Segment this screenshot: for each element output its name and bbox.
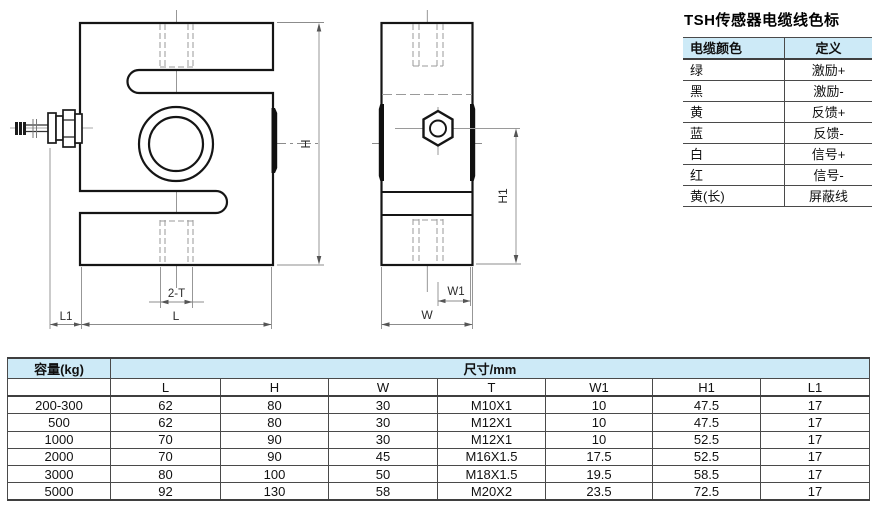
table-row: 蓝 反馈- xyxy=(683,123,872,144)
datasheet-page: H 2-T L1 L xyxy=(0,0,881,506)
cell: M16X1.5 xyxy=(438,448,546,465)
cell: M12X1 xyxy=(438,414,546,431)
table-row: 黄 反馈+ xyxy=(683,102,872,123)
cell: 80 xyxy=(221,414,329,431)
cell-definition: 反馈- xyxy=(785,123,873,144)
dim-2t-label: 2-T xyxy=(168,288,185,300)
dim-h1-arrow-top xyxy=(514,129,519,138)
dim-h-label: H xyxy=(299,139,313,148)
definition-header: 定义 xyxy=(785,38,873,60)
table-row: 黄(长) 屏蔽线 xyxy=(683,186,872,207)
cell: 17 xyxy=(761,448,870,465)
empty-header-cell xyxy=(8,379,111,397)
side-body-outline xyxy=(382,23,473,265)
col-header-w: W xyxy=(329,379,438,397)
cell: 17.5 xyxy=(546,448,653,465)
cell-definition: 信号- xyxy=(785,165,873,186)
cell: M20X2 xyxy=(438,483,546,501)
table-row: 白 信号+ xyxy=(683,144,872,165)
cell: 90 xyxy=(221,431,329,448)
front-view: H 2-T L1 L xyxy=(10,10,324,329)
cell: 62 xyxy=(111,414,221,431)
dim-2t-arrow-right xyxy=(185,300,193,304)
cell: 30 xyxy=(329,414,438,431)
table-row: 5000 92 130 58 M20X2 23.5 72.5 17 xyxy=(8,483,870,501)
cell: 47.5 xyxy=(653,396,761,414)
cell: M12X1 xyxy=(438,431,546,448)
cell-capacity: 200-300 xyxy=(8,396,111,414)
dimension-table: 容量(kg) 尺寸/mm L H W T W1 H1 L1 200-300 62… xyxy=(7,357,870,501)
cell: 30 xyxy=(329,396,438,414)
cell: 17 xyxy=(761,396,870,414)
dim-h-arrow-top xyxy=(317,23,322,32)
cell-color: 黑 xyxy=(683,81,785,102)
side-view: H1 W1 W xyxy=(372,10,521,329)
cell: 17 xyxy=(761,414,870,431)
cell: 10 xyxy=(546,431,653,448)
cell: 62 xyxy=(111,396,221,414)
cell: 100 xyxy=(221,465,329,482)
dim-l1-arrow-left xyxy=(50,322,58,326)
dim-l-arrow-right xyxy=(264,322,272,326)
cell: 17 xyxy=(761,483,870,501)
table-row: 1000 70 90 30 M12X1 10 52.5 17 xyxy=(8,431,870,448)
cable-table-title: TSH传感器电缆线色标 xyxy=(684,9,879,30)
table-row: 200-300 62 80 30 M10X1 10 47.5 17 xyxy=(8,396,870,414)
cell: 72.5 xyxy=(653,483,761,501)
capacity-header: 容量(kg) xyxy=(8,358,111,379)
dim-l1-arrow-right xyxy=(74,322,82,326)
cell-capacity: 2000 xyxy=(8,448,111,465)
cell: 58.5 xyxy=(653,465,761,482)
table-row: 500 62 80 30 M12X1 10 47.5 17 xyxy=(8,414,870,431)
dim-table-group-header-row: 容量(kg) 尺寸/mm xyxy=(8,358,870,379)
cell-definition: 屏蔽线 xyxy=(785,186,873,207)
dim-l-arrow-left xyxy=(82,322,90,326)
col-header-h: H xyxy=(221,379,329,397)
col-header-l1: L1 xyxy=(761,379,870,397)
cell-capacity: 500 xyxy=(8,414,111,431)
cable-color-table: 电缆颜色 定义 绿 激励+ 黑 激励- 黄 反馈+ 蓝 反馈- 白 xyxy=(683,37,872,207)
col-header-h1: H1 xyxy=(653,379,761,397)
cell: 45 xyxy=(329,448,438,465)
cell: 58 xyxy=(329,483,438,501)
cell-definition: 反馈+ xyxy=(785,102,873,123)
dim-h1-label: H1 xyxy=(496,188,510,204)
dim-h1-arrow-bottom xyxy=(514,255,519,264)
cable-gland xyxy=(10,110,93,147)
cell: 30 xyxy=(329,431,438,448)
dim-w-arrow-left xyxy=(382,322,390,326)
dim-l-label: L xyxy=(173,309,180,323)
dim-h-arrow-bottom xyxy=(317,256,322,265)
cell-color: 黄 xyxy=(683,102,785,123)
col-header-l: L xyxy=(111,379,221,397)
dim-l1-label: L1 xyxy=(60,311,73,323)
dim-w-label: W xyxy=(421,308,433,322)
cell-color: 黄(长) xyxy=(683,186,785,207)
cell-definition: 激励+ xyxy=(785,59,873,81)
cable-color-header: 电缆颜色 xyxy=(683,38,785,60)
dim-w1-arrow-left xyxy=(438,299,446,303)
dim-w1-arrow-right xyxy=(463,299,471,303)
dim-2t-arrow-left xyxy=(161,300,169,304)
table-row: 黑 激励- xyxy=(683,81,872,102)
cell: 80 xyxy=(221,396,329,414)
cell: 50 xyxy=(329,465,438,482)
cell: 92 xyxy=(111,483,221,501)
front-label-plate xyxy=(272,108,278,173)
cable-table-header-row: 电缆颜色 定义 xyxy=(683,38,872,60)
cell: 70 xyxy=(111,448,221,465)
col-header-w1: W1 xyxy=(546,379,653,397)
side-label-plate-left xyxy=(379,104,384,181)
cell: 17 xyxy=(761,431,870,448)
cell: 47.5 xyxy=(653,414,761,431)
dim-table-column-header-row: L H W T W1 H1 L1 xyxy=(8,379,870,397)
table-row: 3000 80 100 50 M18X1.5 19.5 58.5 17 xyxy=(8,465,870,482)
cell: 80 xyxy=(111,465,221,482)
col-header-t: T xyxy=(438,379,546,397)
cell: 90 xyxy=(221,448,329,465)
cell: 19.5 xyxy=(546,465,653,482)
cell: M10X1 xyxy=(438,396,546,414)
dim-w1-label: W1 xyxy=(447,286,464,298)
table-row: 绿 激励+ xyxy=(683,59,872,81)
cell: 10 xyxy=(546,396,653,414)
cell-color: 绿 xyxy=(683,59,785,81)
cell: 52.5 xyxy=(653,448,761,465)
cell-capacity: 5000 xyxy=(8,483,111,501)
cell: M18X1.5 xyxy=(438,465,546,482)
cell: 130 xyxy=(221,483,329,501)
cell-color: 红 xyxy=(683,165,785,186)
cell-color: 蓝 xyxy=(683,123,785,144)
cell: 23.5 xyxy=(546,483,653,501)
table-row: 2000 70 90 45 M16X1.5 17.5 52.5 17 xyxy=(8,448,870,465)
cell-capacity: 3000 xyxy=(8,465,111,482)
cell-color: 白 xyxy=(683,144,785,165)
dim-w-arrow-right xyxy=(465,322,473,326)
cell: 52.5 xyxy=(653,431,761,448)
cell: 17 xyxy=(761,465,870,482)
table-row: 红 信号- xyxy=(683,165,872,186)
size-header: 尺寸/mm xyxy=(111,358,870,379)
cell: 10 xyxy=(546,414,653,431)
s-body-outline xyxy=(80,23,273,265)
cell-capacity: 1000 xyxy=(8,431,111,448)
side-label-plate-right xyxy=(470,104,475,181)
cell-definition: 信号+ xyxy=(785,144,873,165)
cell: 70 xyxy=(111,431,221,448)
cell-definition: 激励- xyxy=(785,81,873,102)
